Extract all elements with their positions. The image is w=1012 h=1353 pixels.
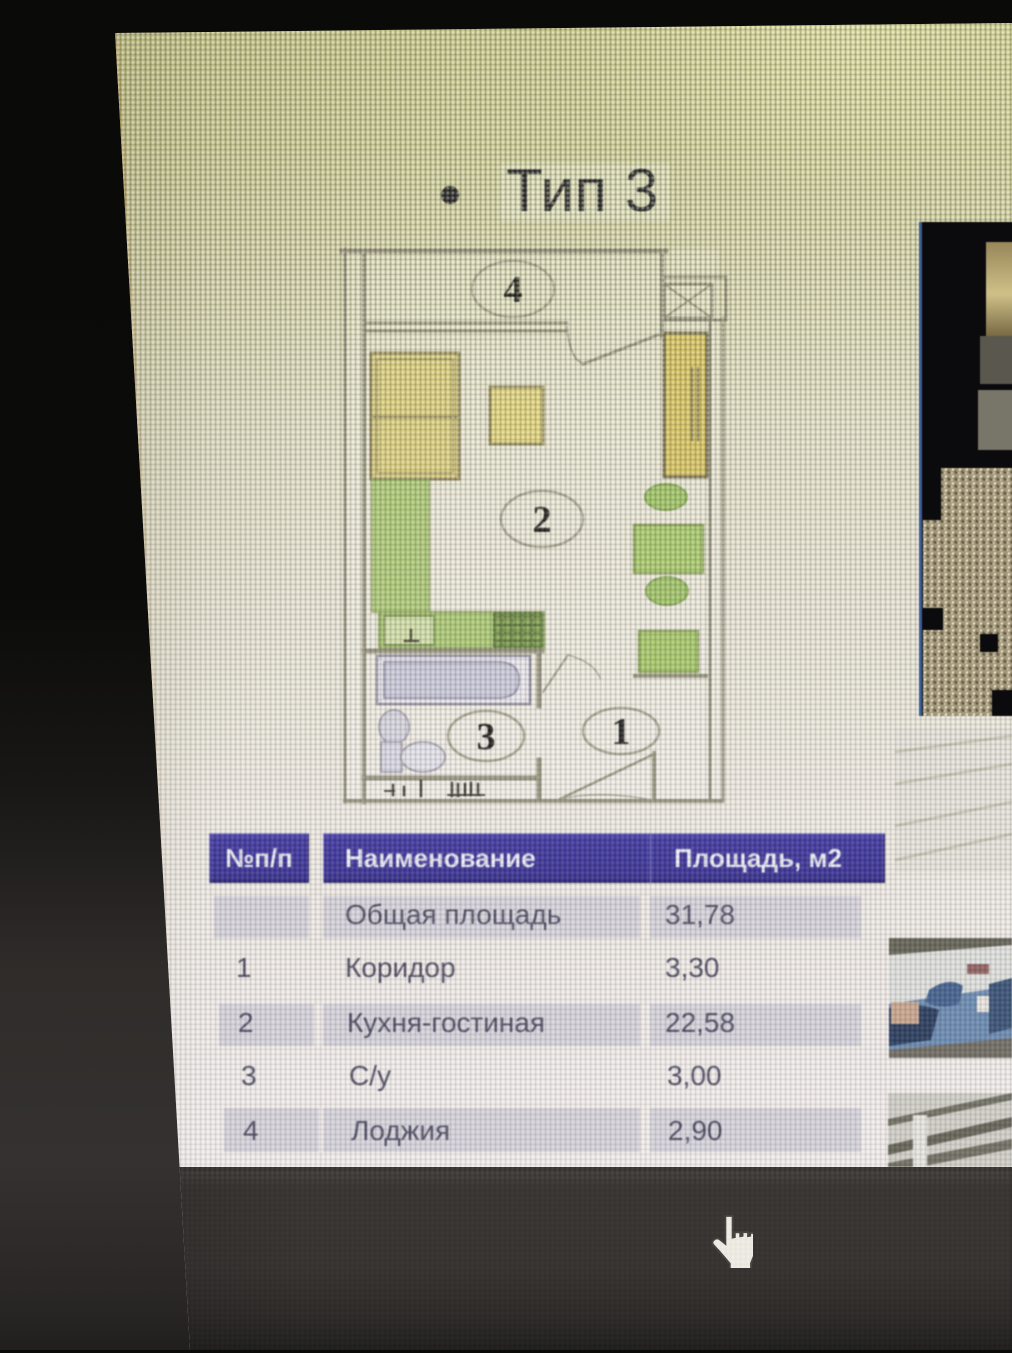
- svg-text:2: 2: [533, 499, 552, 541]
- svg-text:1: 1: [612, 711, 631, 753]
- svg-text:4: 4: [504, 269, 523, 311]
- svg-text:3: 3: [477, 716, 496, 758]
